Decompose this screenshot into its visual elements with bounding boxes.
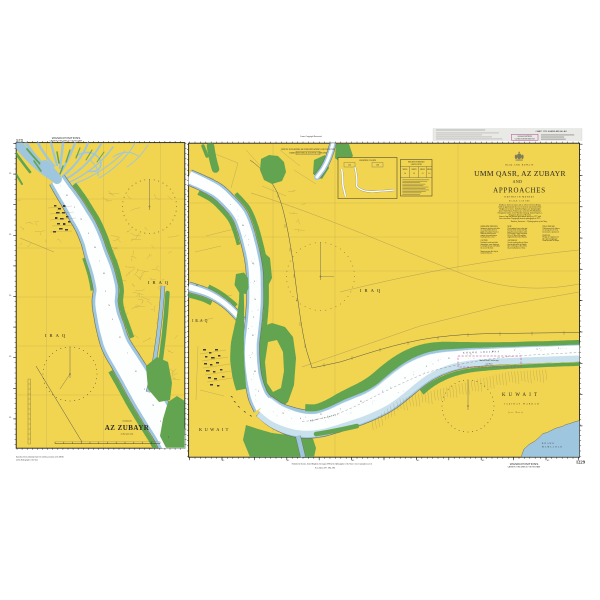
svg-text:IRAQ: IRAQ <box>360 288 383 293</box>
svg-text:78: 78 <box>152 405 154 407</box>
svg-text:on the same scale: on the same scale <box>121 434 134 436</box>
svg-text:88: 88 <box>254 371 256 373</box>
svg-text:UN Security Council resolution: UN Security Council resolution <box>508 233 528 235</box>
svg-text:later corrections. Topography: later corrections. Topography from air p… <box>499 217 541 220</box>
svg-text:remain in this area.: remain in this area. <box>481 253 493 255</box>
svg-text:MHWS: MHWS <box>403 169 408 171</box>
svg-text:NOTICES TO MARINERS ARE PUBLIS: NOTICES TO MARINERS ARE PUBLISHED WEEKLY… <box>281 148 335 151</box>
svg-text:74: 74 <box>254 299 256 301</box>
svg-text:78: 78 <box>80 219 82 221</box>
svg-text:KHAWR: KHAWR <box>542 442 555 445</box>
svg-text:New editions 1977, 1984, 1996: New editions 1977, 1984, 1996 <box>315 467 335 469</box>
svg-text:CORRECTION SHOULD ALWAYS BE CO: CORRECTION SHOULD ALWAYS BE CONSULTED <box>289 152 328 155</box>
svg-text:1229: 1229 <box>576 460 586 465</box>
svg-text:76: 76 <box>282 413 284 415</box>
svg-text:86: 86 <box>103 273 105 275</box>
svg-text:74: 74 <box>108 305 110 307</box>
svg-text:1.3: 1.3 <box>422 173 424 175</box>
svg-text:Taunton, Somerset — Hydrograph: Taunton, Somerset — Hydrographer of the … <box>511 220 548 223</box>
svg-text:Crown Copyright Reserved: Crown Copyright Reserved <box>300 135 322 138</box>
svg-text:HEIGHTS IN METRES: HEIGHTS IN METRES <box>408 162 425 164</box>
svg-text:2.6: 2.6 <box>413 173 415 175</box>
svg-text:Qasr should anchor in Warbah: Qasr should anchor in Warbah <box>508 244 527 246</box>
svg-text:Uncharted wrecks and other: Uncharted wrecks and other <box>481 242 499 244</box>
svg-text:94: 94 <box>94 247 96 249</box>
svg-text:92: 92 <box>320 414 322 416</box>
svg-text:(see Note): (see Note) <box>508 411 524 414</box>
svg-text:85: 85 <box>252 335 254 337</box>
svg-text:3.4: 3.4 <box>404 173 406 175</box>
svg-text:WGS84 POSITIONS: WGS84 POSITIONS <box>52 136 81 140</box>
svg-text:Submarine pipelines and cables: Submarine pipelines and cables <box>481 228 501 230</box>
svg-text:85: 85 <box>360 401 362 403</box>
svg-text:IRAQ AND KUWAIT: IRAQ AND KUWAIT <box>505 164 534 167</box>
svg-text:SZD: SZD <box>16 139 24 143</box>
svg-text:been drawn in accordance with: been drawn in accordance with <box>508 231 527 233</box>
svg-text:MLWS: MLWS <box>427 169 432 171</box>
svg-text:84: 84 <box>242 225 244 227</box>
svg-text:Tidal streams in the khawrs: Tidal streams in the khawrs <box>543 228 560 230</box>
svg-text:NOTE: NOTE <box>508 226 512 228</box>
svg-text:SCALE 1:50 000: SCALE 1:50 000 <box>509 200 530 203</box>
svg-text:supplied by the United Nations: supplied by the United Nations. <box>508 237 528 239</box>
svg-text:63: 63 <box>66 195 68 197</box>
svg-text:AND: AND <box>513 180 523 184</box>
svg-text:96: 96 <box>252 263 254 265</box>
svg-text:93: 93 <box>448 358 450 360</box>
svg-text:knots may be experienced.: knots may be experienced. <box>543 231 560 233</box>
svg-text:MAMLAHAH: MAMLAHAH <box>542 446 563 449</box>
svg-text:64: 64 <box>196 285 198 287</box>
svg-text:APPROACHES: APPROACHES <box>493 187 546 194</box>
svg-text:92: 92 <box>119 337 121 339</box>
svg-text:1226: 1226 <box>376 165 379 167</box>
svg-text:KUWAIT: KUWAIT <box>199 427 231 432</box>
svg-text:0.5: 0.5 <box>428 173 430 175</box>
svg-text:WGS84 POSITIONS: WGS84 POSITIONS <box>510 462 539 466</box>
svg-text:DEPTHS IN METRES: DEPTHS IN METRES <box>505 197 535 199</box>
svg-text:WGS84 POSITIONS: WGS84 POSITIONS <box>517 136 532 138</box>
svg-text:Warbah Inner Anchorage: Warbah Inner Anchorage <box>479 359 498 362</box>
svg-text:85: 85 <box>135 371 137 373</box>
svg-text:UMM QASR, AZ ZUBAYR: UMM QASR, AZ ZUBAYR <box>474 169 566 178</box>
svg-text:Kuwait shown on this chart has: Kuwait shown on this chart has <box>508 230 528 232</box>
svg-text:IRAQ: IRAQ <box>192 319 210 323</box>
svg-text:75: 75 <box>536 349 538 351</box>
svg-text:Mariners should exercise: Mariners should exercise <box>481 233 497 235</box>
svg-text:Published at Taunton, United K: Published at Taunton, United Kingdom 2nd… <box>292 463 373 466</box>
svg-text:CHART 1226 KHAWR ABD ALLAH: CHART 1226 KHAWR ABD ALLAH <box>535 130 567 133</box>
svg-text:IRAQ: IRAQ <box>148 280 171 285</box>
svg-text:86: 86 <box>492 351 494 353</box>
svg-text:Numerous mine-like objects: Numerous mine-like objects <box>481 251 499 253</box>
svg-text:(continued): (continued) <box>123 420 132 423</box>
svg-text:1235: 1235 <box>348 165 351 167</box>
svg-text:JAZIRAT WARBAH: JAZIRAT WARBAH <box>504 403 540 406</box>
svg-text:ADJOINING CHARTS: ADJOINING CHARTS <box>359 159 376 162</box>
svg-text:IRAQ: IRAQ <box>45 333 68 338</box>
svg-text:KUWAIT: KUWAIT <box>502 393 540 398</box>
svg-text:AZ ZUBAYR: AZ ZUBAYR <box>105 424 150 432</box>
svg-text:77: 77 <box>404 378 406 380</box>
